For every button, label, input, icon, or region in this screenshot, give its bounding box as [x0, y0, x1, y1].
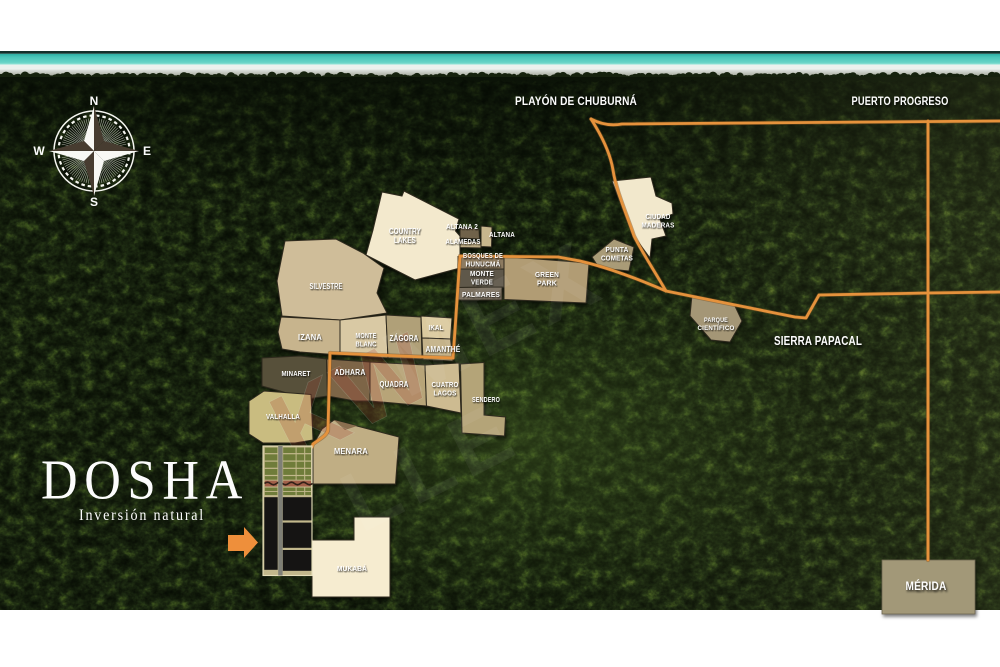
svg-text:SIERRA PAPACAL: SIERRA PAPACAL [774, 334, 862, 348]
svg-text:SILVESTRE: SILVESTRE [310, 282, 343, 291]
svg-text:GREENPARK: GREENPARK [535, 270, 559, 288]
svg-text:PLAYÓN DE CHUBURNÁ: PLAYÓN DE CHUBURNÁ [515, 93, 637, 108]
svg-text:W: W [33, 144, 45, 158]
svg-text:ALTANA 2: ALTANA 2 [446, 222, 478, 231]
svg-text:MONTEVERDE: MONTEVERDE [470, 269, 494, 287]
svg-text:MUKABÁ: MUKABÁ [337, 564, 367, 573]
svg-text:PUNTACOMETAS: PUNTACOMETAS [601, 245, 633, 262]
svg-text:ZÁGORA: ZÁGORA [390, 334, 419, 343]
svg-text:DOSHA: DOSHA [41, 449, 249, 510]
svg-text:E: E [143, 144, 151, 158]
svg-text:PALMARES: PALMARES [462, 290, 500, 299]
svg-text:BOSQUES DEHUNUCMÁ: BOSQUES DEHUNUCMÁ [463, 251, 503, 269]
svg-text:MENARA: MENARA [334, 447, 368, 456]
svg-text:ADHARA: ADHARA [335, 368, 366, 377]
svg-text:SENDERO: SENDERO [472, 395, 500, 404]
svg-text:S: S [90, 195, 98, 209]
svg-text:MONTEBLANC: MONTEBLANC [356, 331, 377, 349]
svg-text:CUATROLAGOS: CUATROLAGOS [432, 380, 459, 398]
svg-text:MINARET: MINARET [282, 369, 311, 378]
svg-text:ALAMEDAS: ALAMEDAS [446, 237, 481, 246]
svg-text:IKAL: IKAL [429, 323, 444, 332]
svg-text:IZANA: IZANA [298, 333, 322, 342]
svg-text:MÉRIDA: MÉRIDA [906, 580, 947, 593]
svg-text:QUADRA: QUADRA [380, 380, 409, 389]
svg-text:ALTANA: ALTANA [489, 230, 515, 239]
svg-text:Inversión natural: Inversión natural [79, 507, 205, 524]
svg-text:N: N [90, 94, 99, 108]
svg-text:PUERTO PROGRESO: PUERTO PROGRESO [852, 94, 949, 108]
svg-text:CIUDADMADERAS: CIUDADMADERAS [642, 212, 675, 229]
svg-text:VALHALLA: VALHALLA [266, 412, 300, 421]
svg-text:AMANTHÉ: AMANTHÉ [426, 345, 461, 354]
